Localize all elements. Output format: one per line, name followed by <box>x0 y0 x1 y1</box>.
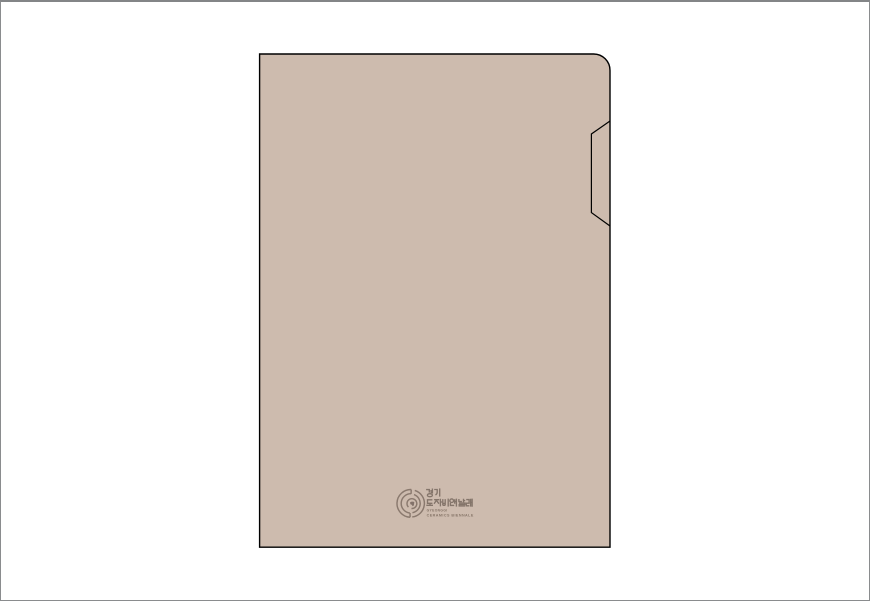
svg-text:GYEONGGI: GYEONGGI <box>427 509 448 513</box>
svg-text:CERAMICS BIENNALE: CERAMICS BIENNALE <box>427 514 474 518</box>
